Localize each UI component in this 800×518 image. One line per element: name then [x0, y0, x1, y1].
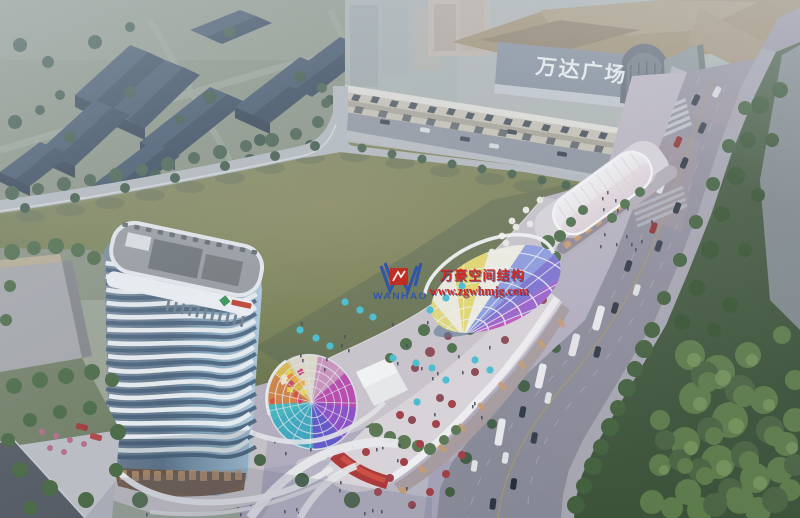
- svg-text:万豪空间结构: 万豪空间结构: [439, 268, 525, 283]
- svg-text:WANHAO: WANHAO: [373, 291, 428, 301]
- svg-text:www.zgwhmjg.com: www.zgwhmjg.com: [429, 284, 530, 298]
